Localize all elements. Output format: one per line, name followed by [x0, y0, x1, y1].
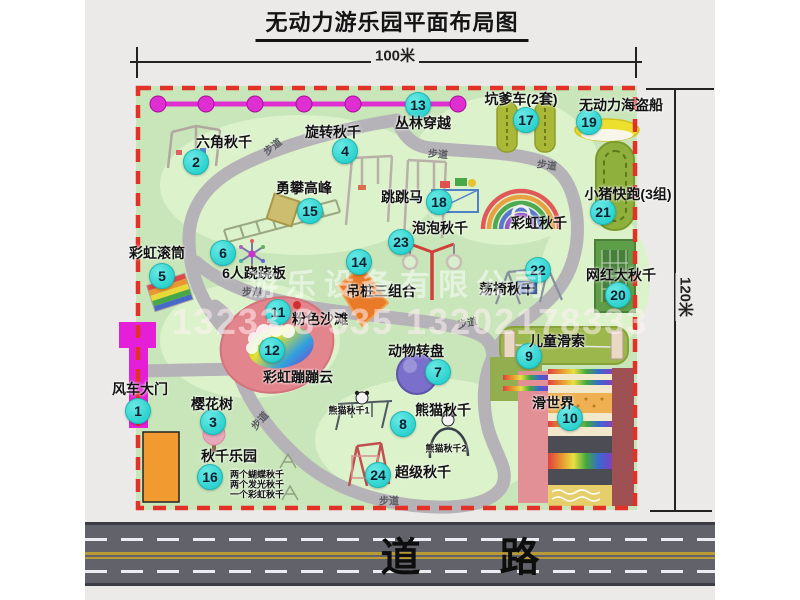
attraction-label: 樱花树 — [191, 394, 233, 414]
attraction-label: 网红大秋千 — [586, 265, 656, 285]
attraction-badge: 8 — [390, 411, 416, 437]
attraction-badge: 16 — [197, 464, 223, 490]
attraction-label: 无动力海盗船 — [579, 95, 663, 115]
attraction-label: 勇攀高峰 — [276, 178, 332, 198]
attraction-label: 泡泡秋千 — [412, 218, 468, 238]
feature-label: 一个彩虹秋千 — [230, 488, 284, 501]
attraction-label: 荡椅秋千 — [479, 279, 535, 299]
attraction-label: 儿童滑索 — [529, 331, 585, 351]
attraction-label: 小猪快跑(3组) — [584, 184, 671, 204]
attraction-label: 六角秋千 — [196, 132, 252, 152]
dimension-height-label: 120米 — [676, 273, 697, 321]
attraction-label: 丛林穿越 — [395, 113, 451, 133]
attraction-badge: 20 — [605, 282, 631, 308]
path-label: 步道 — [536, 155, 558, 173]
page-title: 无动力游乐园平面布局图 — [255, 5, 528, 42]
attraction-label: 坑爹车(2套) — [484, 89, 557, 109]
attraction-badge: 18 — [426, 189, 452, 215]
path-label: 步道 — [242, 284, 262, 299]
attraction-label: 动物转盘 — [388, 341, 444, 361]
road-label: 道 路 — [380, 525, 573, 583]
attraction-label: 吊桩三组合 — [346, 281, 416, 301]
feature-label: 彩虹秋千 — [511, 213, 567, 233]
path-label: 步道 — [456, 313, 479, 332]
attraction-label: 超级秋千 — [395, 462, 451, 482]
path-label: 步道 — [247, 408, 272, 433]
attraction-badge: 24 — [365, 462, 391, 488]
feature-label: 熊猫秋千1 — [328, 404, 369, 417]
attraction-badge: 5 — [149, 263, 175, 289]
dimension-width-label: 100米 — [371, 45, 419, 66]
path-label: 步道 — [379, 493, 399, 508]
attraction-badge: 15 — [297, 198, 323, 224]
attraction-badge: 7 — [425, 359, 451, 385]
plan-image: 无动力游乐园平面布局图 100米 120米 — [0, 0, 800, 600]
attraction-label: 彩虹蹦蹦云 — [263, 367, 333, 387]
feature-label: 熊猫秋千2 — [425, 442, 466, 455]
attraction-badge: 11 — [265, 299, 291, 325]
attraction-badge: 1 — [125, 398, 151, 424]
path-label: 步道 — [427, 145, 448, 162]
attraction-label: 跳跳马 — [381, 187, 423, 207]
attraction-label: 6人跷跷板 — [222, 263, 286, 283]
attraction-badge: 14 — [346, 249, 372, 275]
attraction-badge: 12 — [259, 337, 285, 363]
road: 道 路 — [85, 522, 715, 586]
attraction-badge: 17 — [513, 107, 539, 133]
attraction-label: 熊猫秋千 — [415, 400, 471, 420]
attraction-label: 粉色沙滩 — [292, 309, 348, 329]
attraction-label: 滑世界 — [532, 393, 574, 413]
path-label: 步道 — [260, 134, 285, 158]
attraction-badge: 2 — [183, 149, 209, 175]
attraction-label: 秋千乐园 — [201, 446, 257, 466]
attraction-label: 旋转秋千 — [305, 122, 361, 142]
attraction-label: 彩虹滚筒 — [129, 243, 185, 263]
attraction-label: 风车大门 — [112, 379, 168, 399]
attraction-badge: 23 — [388, 229, 414, 255]
